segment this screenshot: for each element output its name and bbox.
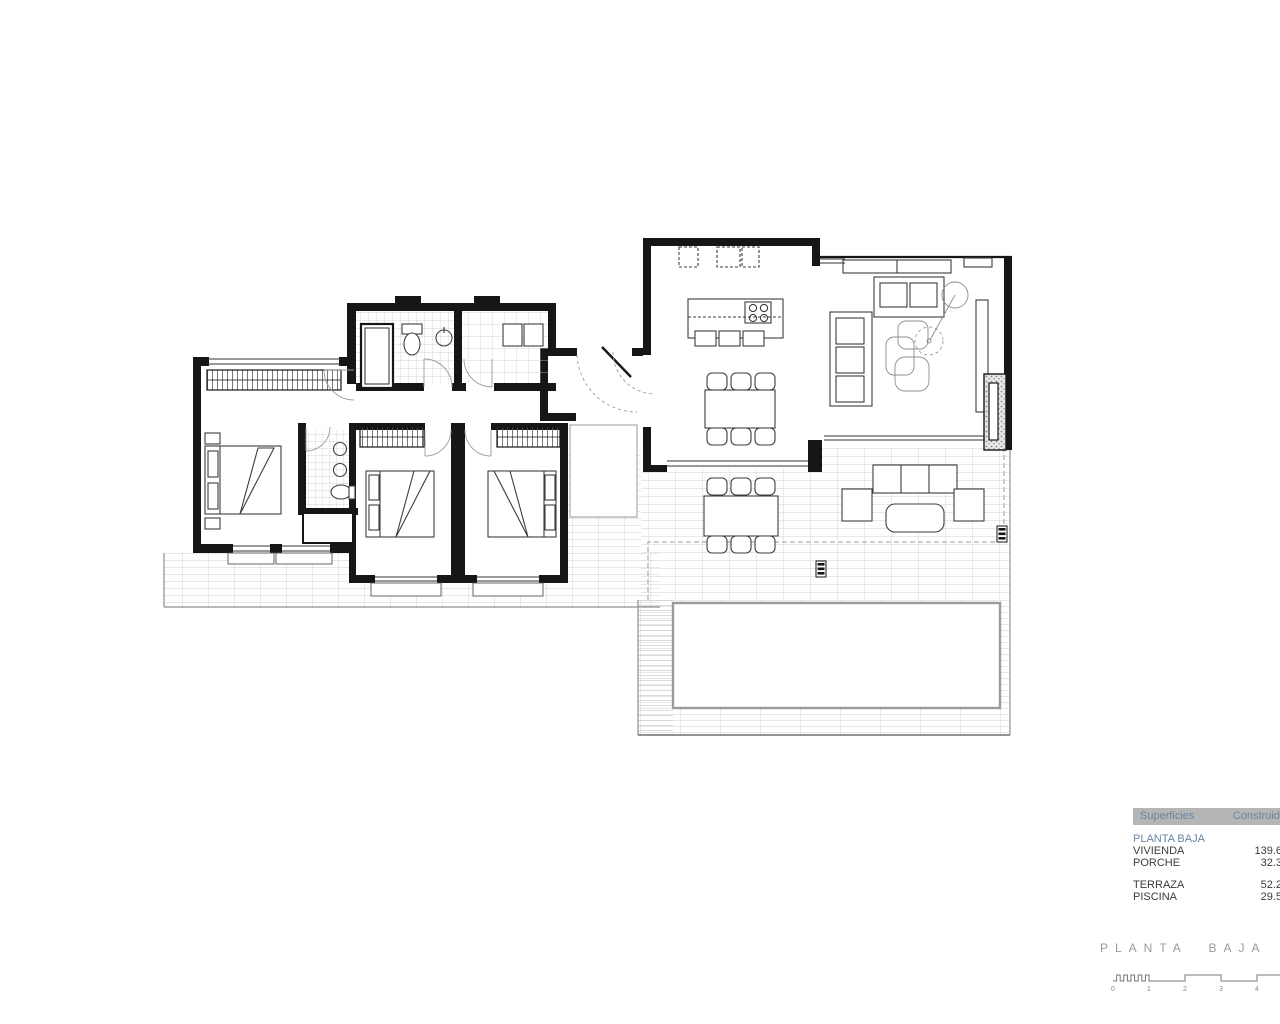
chair: [707, 428, 727, 445]
upper-cabinet: [679, 247, 698, 267]
sofa-two-seat: [874, 277, 944, 317]
pool-deck: [638, 600, 1010, 735]
living-room: [830, 258, 1006, 450]
stool: [743, 331, 764, 346]
window-sill: [228, 553, 274, 564]
outdoor-armchair: [842, 489, 872, 521]
row-label: PISCINA: [1133, 891, 1177, 903]
plan-title: PLANTA BAJA: [1100, 941, 1280, 955]
header-construida: Construida: [1233, 808, 1280, 825]
outdoor-sofa: [873, 465, 957, 493]
dining-table: [705, 390, 775, 428]
dressing-closet: [303, 513, 353, 543]
chair: [731, 428, 751, 445]
cabinet: [964, 258, 992, 267]
row-label: TERRAZA: [1133, 879, 1184, 891]
scale-bar: 0 1 2 3 4: [1100, 958, 1280, 998]
table-row: PISCINA 29.5: [1133, 891, 1280, 903]
stool: [695, 331, 716, 346]
sofa-three-seat: [830, 312, 872, 406]
chair: [755, 478, 775, 495]
chair: [707, 373, 727, 390]
window-sill: [276, 553, 332, 564]
window-sill: [473, 583, 543, 596]
coffee-table: [886, 504, 944, 532]
chair: [731, 373, 751, 390]
scale-tick-3: 3: [1219, 986, 1223, 993]
armchair: [886, 337, 914, 375]
upper-cabinet: [717, 247, 740, 267]
stool: [719, 331, 740, 346]
outdoor-armchair: [954, 489, 984, 521]
bedroom2-bed: [366, 471, 434, 537]
armchair: [898, 321, 928, 349]
fireplace: [984, 374, 1006, 450]
chair: [731, 536, 751, 553]
washer: [503, 324, 522, 346]
section-planta-baja: PLANTA BAJA: [1133, 833, 1280, 845]
scale-tick-4: 4: [1255, 986, 1259, 993]
shower: [361, 324, 393, 388]
entry-porch: [570, 425, 637, 517]
row-value: 32.3: [1241, 857, 1280, 869]
terrace-light: [997, 526, 1007, 542]
row-value: 29.5: [1241, 891, 1280, 903]
swimming-pool: [673, 603, 1000, 708]
terrace-light: [816, 561, 826, 577]
dryer: [524, 324, 543, 346]
chair: [755, 536, 775, 553]
chair: [707, 478, 727, 495]
header-superficies: Superficies: [1133, 810, 1194, 822]
row-value: 139.6: [1241, 845, 1280, 857]
chair: [755, 373, 775, 390]
master-bed: [205, 433, 281, 529]
scale-tick-0: 0: [1111, 986, 1115, 993]
outdoor-table: [704, 496, 778, 536]
scale-tick-2: 2: [1183, 986, 1187, 993]
deck-steps: [638, 600, 673, 735]
table-row: PORCHE 32.3: [1133, 857, 1280, 869]
outdoor-dining-set: [704, 478, 778, 553]
upper-cabinet: [742, 247, 759, 267]
kitchen: [679, 247, 783, 346]
table-header: Superficies Construida: [1133, 808, 1280, 825]
bedroom3-wardrobe: [497, 427, 560, 447]
scale-tick-1: 1: [1147, 986, 1151, 993]
bedroom3-bed: [488, 471, 556, 537]
floor-plan-drawing: [0, 0, 1280, 1024]
chair: [755, 428, 775, 445]
bedroom2-wardrobe: [360, 427, 424, 447]
row-label: VIVIENDA: [1133, 845, 1184, 857]
chair: [707, 536, 727, 553]
table-row: VIVIENDA 139.6: [1133, 845, 1280, 857]
window-sill: [371, 583, 441, 596]
table-row: TERRAZA 52.2: [1133, 879, 1280, 891]
scale-bar-line: [1113, 975, 1280, 981]
master-wardrobe: [207, 370, 341, 390]
row-label: PORCHE: [1133, 857, 1180, 869]
chair: [731, 478, 751, 495]
row-value: 52.2: [1241, 879, 1280, 891]
entry-pivot-door: [577, 347, 637, 412]
toilet: [402, 324, 422, 355]
dining-set: [705, 373, 775, 445]
areas-summary-table: Superficies Construida PLANTA BAJA VIVIE…: [1133, 808, 1280, 903]
pouf: [895, 357, 929, 391]
floor-plan-page: { "summary_table": { "header": { "col1":…: [0, 0, 1280, 1024]
